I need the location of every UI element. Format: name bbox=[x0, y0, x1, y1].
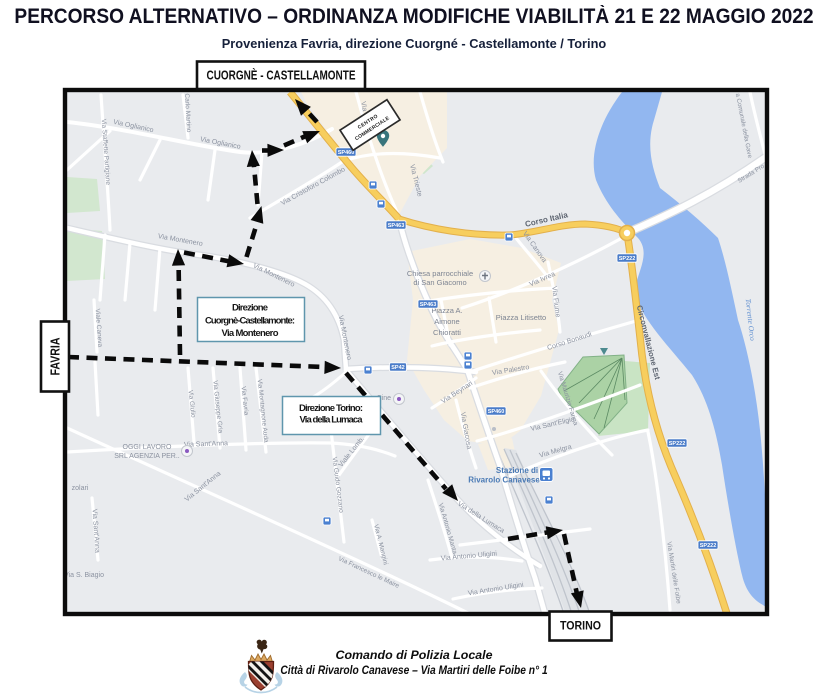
svg-text:Via della Lumaca: Via della Lumaca bbox=[300, 415, 364, 426]
svg-text:OGGI LAVORO: OGGI LAVORO bbox=[123, 444, 172, 451]
svg-text:SP463: SP463 bbox=[388, 223, 405, 229]
svg-text:SP222: SP222 bbox=[700, 543, 717, 549]
svg-text:Via S. Biagio: Via S. Biagio bbox=[64, 572, 104, 579]
svg-text:TORINO: TORINO bbox=[560, 619, 601, 633]
svg-text:Direzione: Direzione bbox=[232, 303, 268, 314]
svg-text:SP460: SP460 bbox=[488, 409, 505, 415]
svg-text:Chioratti: Chioratti bbox=[433, 328, 461, 337]
svg-text:Stazione di: Stazione di bbox=[496, 466, 538, 475]
svg-text:CUORGNÈ - CASTELLAMONTE: CUORGNÈ - CASTELLAMONTE bbox=[207, 68, 356, 83]
svg-text:SP222: SP222 bbox=[669, 441, 686, 447]
svg-text:Via Montenero: Via Montenero bbox=[222, 328, 279, 339]
svg-text:SP222: SP222 bbox=[619, 256, 636, 262]
svg-text:Rivarolo Canavese: Rivarolo Canavese bbox=[468, 476, 540, 485]
svg-text:Aimone: Aimone bbox=[434, 317, 459, 326]
svg-text:SP460: SP460 bbox=[338, 150, 355, 156]
svg-text:Cuorgnè-Castellamonte:: Cuorgnè-Castellamonte: bbox=[205, 316, 295, 327]
svg-text:SRL AGENZIA PER..: SRL AGENZIA PER.. bbox=[114, 453, 180, 460]
svg-text:SP463: SP463 bbox=[420, 302, 437, 308]
svg-text:Direzione Torino:: Direzione Torino: bbox=[299, 403, 363, 414]
svg-text:Chiesa parrocchiale: Chiesa parrocchiale bbox=[407, 269, 473, 278]
svg-text:zolari: zolari bbox=[72, 485, 89, 492]
svg-text:Piazza Litisetto: Piazza Litisetto bbox=[496, 313, 546, 322]
svg-text:FAVRIA: FAVRIA bbox=[49, 338, 63, 376]
svg-text:di San Giacomo: di San Giacomo bbox=[413, 278, 466, 287]
svg-text:SP42: SP42 bbox=[391, 365, 404, 371]
